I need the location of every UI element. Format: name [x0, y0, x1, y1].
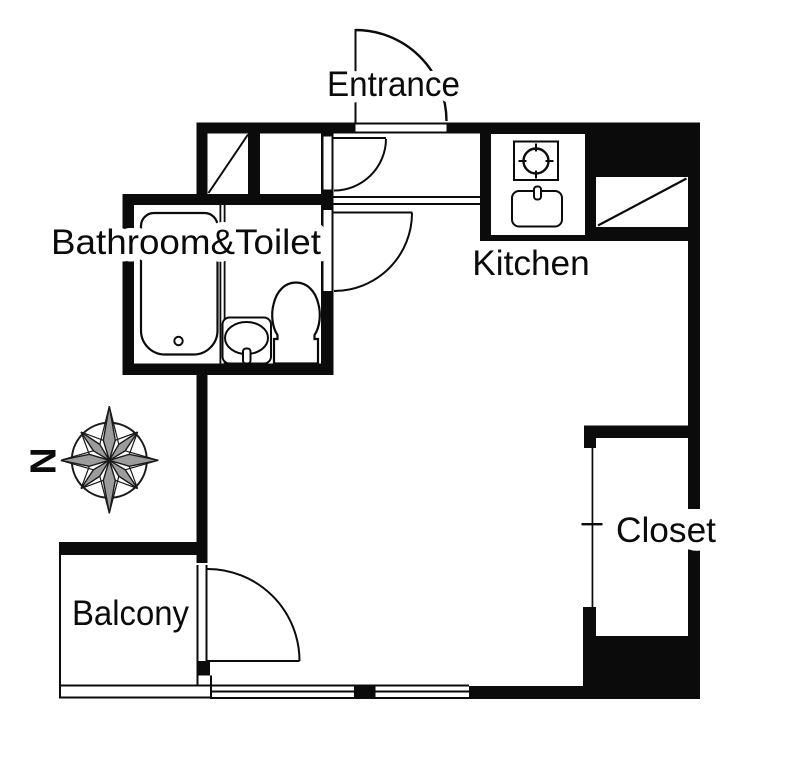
svg-text:Balcony: Balcony	[72, 594, 189, 633]
svg-text:Kitchen: Kitchen	[472, 244, 590, 283]
svg-text:N: N	[23, 448, 64, 475]
svg-text:Closet: Closet	[616, 511, 716, 550]
svg-text:Bathroom&Toilet: Bathroom&Toilet	[51, 223, 321, 262]
svg-text:Entrance: Entrance	[327, 65, 460, 104]
